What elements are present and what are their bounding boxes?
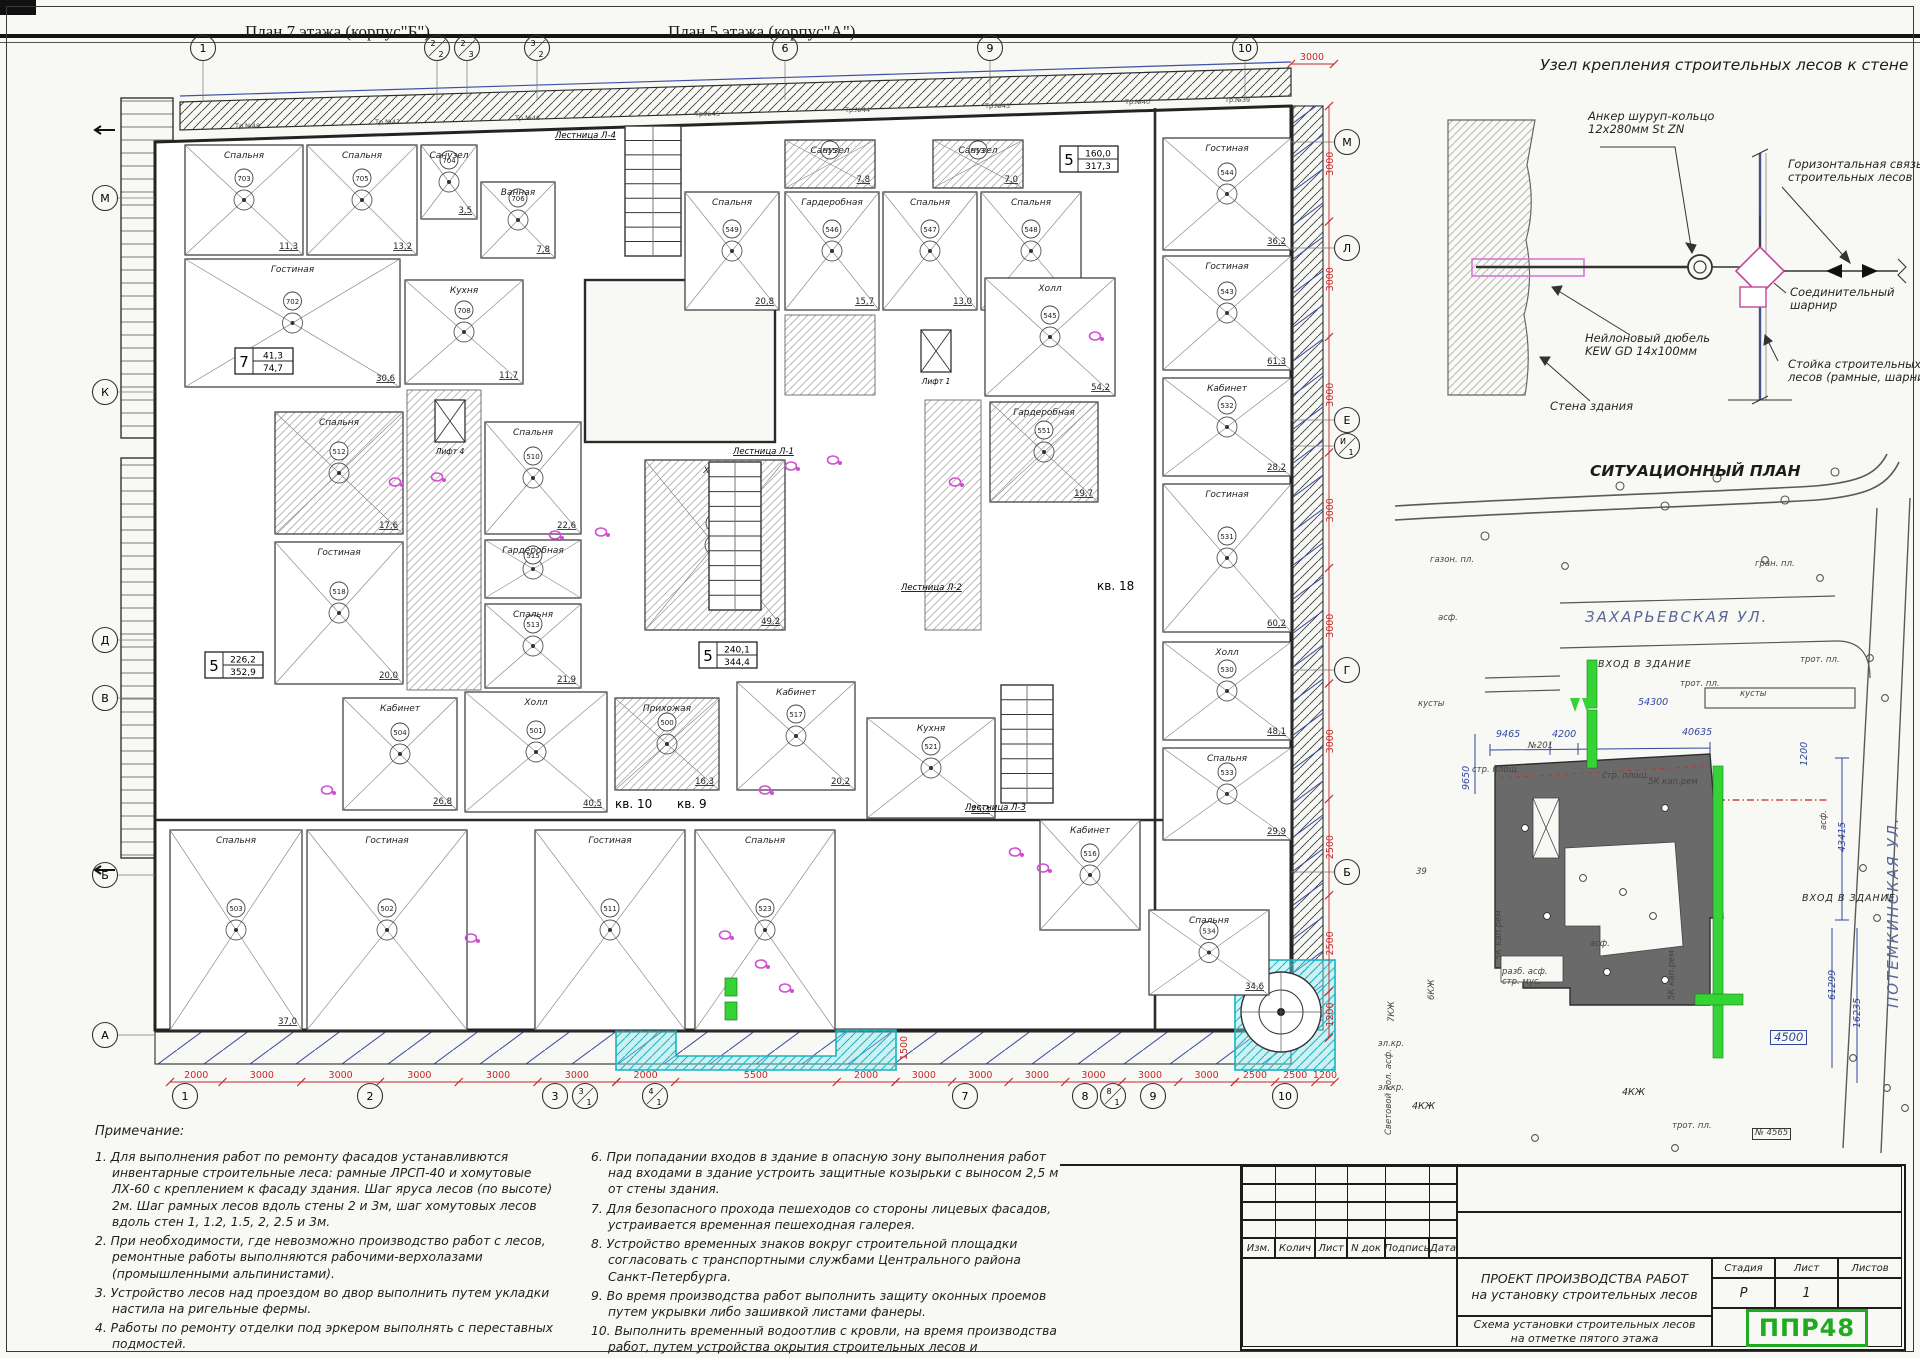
room-area: 30,6 bbox=[376, 374, 395, 384]
room: 547Спальня13,0 bbox=[883, 192, 977, 310]
apt-label: кв. 9 bbox=[677, 797, 707, 811]
dim-value: 1200 bbox=[1325, 1003, 1336, 1027]
label-asf-3: асф. bbox=[1820, 810, 1830, 830]
room-area: 11,7 bbox=[499, 371, 518, 381]
room-area: 48,1 bbox=[1267, 727, 1286, 737]
svg-text:352,9: 352,9 bbox=[230, 668, 256, 678]
dim-value: 3000 bbox=[912, 1070, 936, 1081]
label-wall: Стена здания bbox=[1550, 400, 1633, 413]
room-number: 516 bbox=[1083, 850, 1097, 858]
note-item: 8. Устройство временных знаков вокруг ст… bbox=[591, 1236, 1059, 1285]
room-name: Спальня bbox=[1011, 198, 1052, 208]
svg-text:Л: Л bbox=[1343, 242, 1351, 255]
room-area: 26,8 bbox=[433, 797, 452, 807]
room-number: 548 bbox=[1024, 226, 1037, 234]
label-4kzh-2: 4КЖ bbox=[1622, 1088, 1645, 1099]
pipe-label: Тр.№48 bbox=[234, 122, 260, 130]
room: 708Кухня11,7 bbox=[405, 280, 523, 384]
sheet-header: Лист bbox=[1775, 1258, 1838, 1278]
svg-text:1: 1 bbox=[656, 1098, 661, 1107]
room-number: 501 bbox=[529, 727, 542, 735]
room: 544Гостиная36,2 bbox=[1163, 138, 1291, 250]
axis-bubble: 81 bbox=[1101, 1084, 1126, 1109]
dim-4200: 4200 bbox=[1552, 730, 1576, 741]
stairs bbox=[709, 462, 761, 610]
room-area: 28,2 bbox=[1267, 463, 1286, 473]
room: 706Ванная7,8 bbox=[481, 182, 555, 258]
svg-text:3: 3 bbox=[468, 50, 473, 59]
room-name: Спальня bbox=[224, 151, 265, 161]
stairs bbox=[1001, 685, 1053, 803]
floorplan-svg: 703Спальня11,3705Спальня13,2704Санузел3,… bbox=[85, 30, 1375, 1120]
axis-bubble: 31 bbox=[573, 1084, 598, 1109]
room: 517Кабинет20,2 bbox=[737, 682, 855, 790]
lift: Лифт 1 bbox=[921, 330, 951, 386]
axis-bubble: М bbox=[93, 186, 118, 211]
green-mark bbox=[725, 978, 737, 996]
svg-text:344,4: 344,4 bbox=[724, 658, 750, 668]
room-number: 531 bbox=[1220, 533, 1233, 541]
apt-label: кв. 10 bbox=[615, 797, 652, 811]
room-number: 523 bbox=[758, 905, 771, 913]
dim-value: 3000 bbox=[1025, 1070, 1049, 1081]
room-name: Спальня bbox=[513, 428, 554, 438]
svg-text:5: 5 bbox=[1064, 151, 1074, 169]
label-hinge: Соединительныйшарнир bbox=[1790, 286, 1895, 312]
label-n4565: № 4565 bbox=[1752, 1128, 1791, 1140]
room-number: 517 bbox=[789, 711, 802, 719]
arrow-left-top bbox=[95, 126, 115, 134]
apartment-stamp: 5240,1344,4 bbox=[699, 642, 757, 668]
room: 532Кабинет28,2 bbox=[1163, 378, 1291, 476]
room-number: 546 bbox=[825, 226, 839, 234]
room-number: 512 bbox=[332, 448, 345, 456]
room-number: 544 bbox=[1220, 169, 1234, 177]
svg-text:8: 8 bbox=[1082, 1090, 1089, 1103]
room: 543Гостиная61,3 bbox=[1163, 256, 1291, 370]
label-entrance-right: ВХОД В ЗДАНИЕ bbox=[1802, 894, 1896, 905]
axis-bubble: 7 bbox=[953, 1084, 978, 1109]
note-item: 3. Устройство лесов над проездом во двор… bbox=[95, 1285, 563, 1317]
label-strpl-1: стр. площ. bbox=[1472, 766, 1519, 776]
note-item: 4. Работы по ремонту отделки под эркером… bbox=[95, 1320, 563, 1352]
room-name: Гардеробная bbox=[801, 198, 863, 208]
axis-bubble: 10 bbox=[1273, 1084, 1298, 1109]
room-area: 20,8 bbox=[755, 297, 774, 307]
room-number: 534 bbox=[1202, 928, 1216, 936]
svg-text:Б: Б bbox=[101, 869, 109, 882]
room: 512Спальня17,6 bbox=[275, 412, 403, 534]
label-kaprem-l: 5К кап.рем bbox=[1495, 910, 1505, 960]
dim-value: 2000 bbox=[184, 1070, 208, 1081]
label-asf-2: асф. bbox=[1590, 940, 1610, 950]
axis-bubble: Е bbox=[1335, 408, 1360, 433]
label-kusty-1: кусты bbox=[1418, 700, 1445, 710]
green-mark bbox=[725, 1002, 737, 1020]
stair-label: Лестница Л-3 bbox=[964, 803, 1026, 813]
room: 703Спальня11,3 bbox=[185, 145, 303, 255]
svg-text:3000: 3000 bbox=[1300, 52, 1324, 63]
apartment-stamp: 5226,2352,9 bbox=[205, 652, 263, 678]
dim-value: 3000 bbox=[1325, 498, 1336, 522]
room-name: Гостиная bbox=[1205, 144, 1249, 154]
rev-col-izm: Изм. bbox=[1242, 1238, 1275, 1258]
room: 518Гостиная20,0 bbox=[275, 542, 403, 684]
svg-text:240,1: 240,1 bbox=[724, 646, 750, 656]
room-name: Холл bbox=[1214, 648, 1238, 658]
dim-value: 3000 bbox=[1325, 383, 1336, 407]
room-number: 551 bbox=[1037, 427, 1050, 435]
room-area: 36,2 bbox=[1267, 237, 1286, 247]
room: 503Спальня37,0 bbox=[170, 830, 302, 1030]
room-name: Гостиная bbox=[365, 836, 409, 846]
room-name: Прихожая bbox=[643, 704, 692, 714]
svg-text:К: К bbox=[101, 386, 109, 399]
label-post: Стойка строительныхлесов (рамные, шарнир… bbox=[1788, 358, 1920, 384]
pipe-label: Тр.№39 bbox=[1224, 96, 1250, 104]
svg-text:317,3: 317,3 bbox=[1085, 162, 1111, 172]
dim-value: 3000 bbox=[1325, 267, 1336, 291]
siteplan-title: СИТУАЦИОННЫЙ ПЛАН bbox=[1590, 462, 1801, 480]
dim-61299: 61299 bbox=[1828, 970, 1839, 1000]
room-number: 510 bbox=[526, 453, 539, 461]
room-name: Спальня bbox=[1207, 754, 1248, 764]
dim-value: 1200 bbox=[1313, 1070, 1337, 1081]
svg-text:2: 2 bbox=[460, 39, 465, 48]
pipe-label: Тр.№47 bbox=[374, 118, 400, 126]
room-area: 37,0 bbox=[278, 1017, 297, 1027]
room-name: Спальня bbox=[712, 198, 753, 208]
svg-text:41,3: 41,3 bbox=[263, 352, 283, 362]
room-name: Кабинет bbox=[380, 704, 421, 714]
sheets-header: Листов bbox=[1838, 1258, 1902, 1278]
rev-col-kolich: Колич bbox=[1275, 1238, 1315, 1258]
notes-col1: 1. Для выполнения работ по ремонту фасад… bbox=[95, 1149, 563, 1358]
room-number: 708 bbox=[457, 307, 470, 315]
pipe-label: Тр.№45 bbox=[694, 110, 720, 118]
room-name: Кухня bbox=[917, 724, 946, 734]
room: 549Спальня20,8 bbox=[685, 192, 779, 310]
axis-bubble: К bbox=[93, 380, 118, 405]
room: 510Спальня22,6 bbox=[485, 422, 581, 534]
svg-text:2: 2 bbox=[367, 1090, 374, 1103]
room-name: Гардеробная bbox=[502, 546, 564, 556]
axis-bubble: 2 bbox=[358, 1084, 383, 1109]
anchor-ring bbox=[1688, 255, 1712, 279]
svg-text:1: 1 bbox=[1114, 1098, 1119, 1107]
svg-text:А: А bbox=[101, 1029, 109, 1042]
note-item: 1. Для выполнения работ по ремонту фасад… bbox=[95, 1149, 563, 1230]
label-kaprem-r: 5К кап.рем bbox=[1668, 950, 1678, 1000]
room: 500Прихожая16,3 bbox=[615, 698, 719, 790]
room: 513Спальня21,9 bbox=[485, 604, 581, 688]
svg-text:8: 8 bbox=[1106, 1087, 1111, 1096]
street-zakharyevskaya: ЗАХАРЬЕВСКАЯ УЛ. bbox=[1585, 608, 1768, 626]
room-number: 503 bbox=[229, 905, 242, 913]
svg-text:1: 1 bbox=[1348, 448, 1353, 457]
dim-value: 3000 bbox=[1081, 1070, 1105, 1081]
room-name: Гостиная bbox=[271, 265, 315, 275]
label-trot-1: трот. пл. bbox=[1800, 656, 1840, 666]
svg-text:7: 7 bbox=[962, 1090, 969, 1103]
svg-text:6: 6 bbox=[782, 42, 789, 55]
room-number: 549 bbox=[725, 226, 738, 234]
axis-bubble: 9 bbox=[1141, 1084, 1166, 1109]
svg-text:В: В bbox=[101, 692, 109, 705]
svg-text:3: 3 bbox=[530, 39, 535, 48]
label-4kzh-1: 4КЖ bbox=[1412, 1102, 1435, 1113]
sheets-value bbox=[1838, 1278, 1902, 1308]
room: 504Кабинет26,8 bbox=[343, 698, 457, 810]
room-name: Спальня bbox=[745, 836, 786, 846]
doc-title: ПРОЕКТ ПРОИЗВОДСТВА РАБОТна установку ст… bbox=[1457, 1258, 1712, 1316]
dim-value: 2500 bbox=[1243, 1070, 1267, 1081]
svg-text:10: 10 bbox=[1278, 1090, 1292, 1103]
room-name: Кабинет bbox=[1207, 384, 1248, 394]
svg-text:7: 7 bbox=[239, 353, 249, 371]
room: 705Спальня13,2 bbox=[307, 145, 417, 255]
room-area: 34,6 bbox=[1245, 982, 1264, 992]
room-number: 502 bbox=[380, 905, 393, 913]
rev-col-ndok: N док bbox=[1347, 1238, 1385, 1258]
room-name: Санузел bbox=[958, 146, 997, 156]
svg-text:3: 3 bbox=[552, 1090, 559, 1103]
svg-text:4: 4 bbox=[648, 1087, 653, 1096]
note-item: 9. Во время производства работ выполнить… bbox=[591, 1288, 1059, 1320]
street-potemkinskaya: ПОТЕМКИНСКАЯ УЛ. bbox=[1884, 816, 1902, 1008]
room-name: Спальня bbox=[342, 151, 383, 161]
rev-col-podpis: Подпись bbox=[1385, 1238, 1429, 1258]
room-name: Гостиная bbox=[1205, 490, 1249, 500]
room: 555Санузел7,8 bbox=[785, 140, 875, 188]
room-name: Гардеробная bbox=[1013, 408, 1075, 418]
room: 516Кабинет bbox=[1040, 820, 1140, 930]
label-asf-1: асф. bbox=[1438, 614, 1458, 624]
room: 534Спальня34,6 bbox=[1149, 910, 1269, 995]
axis-bubble: Б bbox=[1335, 860, 1360, 885]
svg-text:2: 2 bbox=[538, 50, 543, 59]
room-number: 530 bbox=[1220, 666, 1233, 674]
svg-text:Лифт 1: Лифт 1 bbox=[921, 377, 950, 386]
dim-value: 2500 bbox=[1325, 835, 1336, 859]
svg-text:10: 10 bbox=[1238, 42, 1252, 55]
axis-bubble: Г bbox=[1335, 658, 1360, 683]
axis-bubble: М bbox=[1335, 130, 1360, 155]
doc-subject: Схема установки строительных лесовна отм… bbox=[1457, 1316, 1712, 1347]
svg-text:Д: Д bbox=[101, 634, 110, 647]
room-area: 60,2 bbox=[1267, 619, 1286, 629]
axis-bubble: 10 bbox=[1233, 36, 1258, 61]
label-svet: Световой кол. асф. bbox=[1385, 1049, 1395, 1135]
dim-value: 2500 bbox=[1325, 931, 1336, 955]
room-area: 11,3 bbox=[279, 242, 298, 252]
label-7kzh: 7КЖ bbox=[1388, 1001, 1398, 1022]
room: 551Гардеробная19,7 bbox=[990, 402, 1098, 502]
svg-text:3: 3 bbox=[578, 1087, 583, 1096]
room-name: Спальня bbox=[1189, 916, 1230, 926]
room-area: 7,8 bbox=[536, 245, 550, 255]
label-trot-3: трот. пл. bbox=[1672, 1122, 1712, 1132]
label-strpl-2: стр. площ. bbox=[1602, 772, 1649, 782]
svg-text:74,7: 74,7 bbox=[263, 364, 283, 374]
svg-text:Лифт 4: Лифт 4 bbox=[435, 447, 465, 456]
room-area: 7,8 bbox=[856, 175, 870, 185]
room-name: Ванная bbox=[501, 188, 536, 198]
dim-value: 2000 bbox=[854, 1070, 878, 1081]
dim-value: 3000 bbox=[1325, 614, 1336, 638]
ppr48-logo: ППР48 bbox=[1746, 1309, 1868, 1347]
room-area: 21,9 bbox=[557, 675, 576, 685]
room-area: 19,7 bbox=[1074, 489, 1093, 499]
axis-bubble: 41 bbox=[643, 1084, 668, 1109]
label-39: 39 bbox=[1416, 868, 1427, 878]
room-area: 61,3 bbox=[1267, 357, 1286, 367]
room-area: 7,0 bbox=[1004, 175, 1018, 185]
label-kusty-2: кусты bbox=[1740, 690, 1767, 700]
rev-col-list: Лист bbox=[1315, 1238, 1347, 1258]
dim-value: 3000 bbox=[1325, 729, 1336, 753]
dim-value: 3000 bbox=[407, 1070, 431, 1081]
room-name: Кухня bbox=[450, 286, 479, 296]
note-item: 2. При необходимости, где невозможно про… bbox=[95, 1233, 563, 1282]
dim-43415: 43415 bbox=[1838, 822, 1849, 852]
room-number: 533 bbox=[1220, 769, 1233, 777]
room-name: Кабинет bbox=[1070, 826, 1111, 836]
dim-value: 3000 bbox=[250, 1070, 274, 1081]
room-name: Кабинет bbox=[776, 688, 817, 698]
room: 533Спальня29,9 bbox=[1163, 748, 1291, 840]
logo-cell: ППР48 bbox=[1712, 1308, 1902, 1347]
label-gazon: газон. пл. bbox=[1430, 556, 1474, 566]
room-name: Санузел bbox=[429, 151, 468, 161]
room-area: 15,7 bbox=[855, 297, 874, 307]
svg-text:Е: Е bbox=[1344, 414, 1351, 427]
dim-value: 3000 bbox=[1138, 1070, 1162, 1081]
room-number: 705 bbox=[355, 175, 368, 183]
dim-value: 3000 bbox=[1194, 1070, 1218, 1081]
axis-bubble: Б bbox=[93, 863, 118, 888]
room: 523Спальня bbox=[695, 830, 835, 1030]
dim-40635: 40635 bbox=[1682, 728, 1712, 739]
svg-text:5: 5 bbox=[703, 647, 713, 665]
notes-heading: Примечание: bbox=[95, 1124, 1060, 1139]
apartment-stamp: 5160,0317,3 bbox=[1060, 146, 1118, 172]
room: 501Холл40,5 bbox=[465, 692, 607, 812]
room: 515Гардеробная bbox=[485, 540, 581, 598]
room: 530Холл48,1 bbox=[1163, 642, 1291, 740]
room: 546Гардеробная15,7 bbox=[785, 192, 879, 310]
dim-value: 3000 bbox=[565, 1070, 589, 1081]
room: 704Санузел3,5 bbox=[421, 145, 477, 219]
room-name: Гостиная bbox=[1205, 262, 1249, 272]
axis-bubble: 32 bbox=[525, 36, 550, 61]
axis-bubble: 1 bbox=[191, 36, 216, 61]
svg-text:1: 1 bbox=[182, 1090, 189, 1103]
dim-9465: 9465 bbox=[1496, 730, 1520, 741]
room-name: Холл bbox=[1037, 284, 1061, 294]
room-name: Гостиная bbox=[588, 836, 632, 846]
svg-text:2: 2 bbox=[438, 50, 443, 59]
axis-bubble: 1 bbox=[173, 1084, 198, 1109]
note-item: 7. Для безопасного прохода пешеходов со … bbox=[591, 1201, 1059, 1233]
room-name: Спальня bbox=[910, 198, 951, 208]
room-name: Спальня bbox=[216, 836, 257, 846]
svg-text:М: М bbox=[1342, 136, 1352, 149]
room: 511Гостиная bbox=[535, 830, 685, 1030]
room-number: 521 bbox=[924, 743, 937, 751]
room-name: Спальня bbox=[513, 610, 554, 620]
dim-value: 2000 bbox=[634, 1070, 658, 1081]
room-area: 13,0 bbox=[953, 297, 972, 307]
axis-bubble: А bbox=[93, 1023, 118, 1048]
svg-text:1500: 1500 bbox=[899, 1036, 910, 1060]
room-number: 511 bbox=[603, 905, 616, 913]
room-number: 500 bbox=[660, 719, 673, 727]
label-n201: №201 bbox=[1528, 742, 1553, 752]
svg-text:9: 9 bbox=[1150, 1090, 1157, 1103]
pipe-label: Тр.№40 bbox=[1124, 98, 1150, 106]
pipe-label: Тр.№43 bbox=[984, 102, 1010, 110]
note-item: 6. При попадании входов в здание в опасн… bbox=[591, 1149, 1059, 1198]
svg-text:1: 1 bbox=[586, 1098, 591, 1107]
dim-value: 3000 bbox=[329, 1070, 353, 1081]
axis-bubble: 3 bbox=[543, 1084, 568, 1109]
room-area: 54,2 bbox=[1091, 383, 1110, 393]
notes-block: Примечание: 1. Для выполнения работ по р… bbox=[95, 1124, 1060, 1358]
room-name: Санузел bbox=[810, 146, 849, 156]
room: 545Холл54,2 bbox=[985, 278, 1115, 396]
label-gran: гран. пл. bbox=[1755, 560, 1795, 570]
title-block: Изм. Колич Лист N док Подпись Дата ПРОЕК… bbox=[1240, 1164, 1906, 1351]
stair-label: Лестница Л-4 bbox=[554, 131, 616, 141]
room-name: Спальня bbox=[319, 418, 360, 428]
room: 502Гостиная bbox=[307, 830, 467, 1030]
label-anchor: Анкер шуруп-кольцо12х280мм St ZN bbox=[1588, 110, 1714, 136]
detail-title: Узел крепления строительных лесов к стен… bbox=[1540, 56, 1908, 74]
room: 531Гостиная60,2 bbox=[1163, 484, 1291, 632]
axis-bubble: 23 bbox=[455, 36, 480, 61]
axis-bubble: 6 bbox=[773, 36, 798, 61]
room-area: 13,2 bbox=[393, 242, 412, 252]
svg-text:М: М bbox=[100, 192, 110, 205]
room-area: 49,2 bbox=[761, 617, 780, 627]
room-number: 702 bbox=[286, 298, 299, 306]
stair-label: Лестница Л-1 bbox=[732, 447, 794, 457]
dim-4500: 4500 bbox=[1770, 1030, 1807, 1045]
room-area: 16,3 bbox=[695, 777, 714, 787]
apt-label: кв. 18 bbox=[1097, 579, 1134, 593]
lift: Лифт 4 bbox=[435, 400, 465, 456]
svg-text:1: 1 bbox=[200, 42, 207, 55]
axis-bubble: 8 bbox=[1073, 1084, 1098, 1109]
svg-text:226,2: 226,2 bbox=[230, 656, 256, 666]
wall-section bbox=[1448, 120, 1535, 395]
room-number: 504 bbox=[393, 729, 407, 737]
room-number: 547 bbox=[923, 226, 936, 234]
apartment-stamp: 741,374,7 bbox=[235, 348, 293, 374]
label-trot-2: трот. пл. bbox=[1680, 680, 1720, 690]
label-entrance-top: ВХОД В ЗДАНИЕ bbox=[1598, 660, 1692, 671]
room: 553Санузел7,0 bbox=[933, 140, 1023, 188]
svg-text:160,0: 160,0 bbox=[1085, 150, 1111, 160]
dim-value: 3000 bbox=[968, 1070, 992, 1081]
svg-text:И: И bbox=[1340, 437, 1346, 446]
dim-1200: 1200 bbox=[1800, 742, 1811, 766]
room-area: 3,5 bbox=[458, 206, 472, 216]
dim-value: 2500 bbox=[1283, 1070, 1307, 1081]
room-name: Холл bbox=[523, 698, 547, 708]
label-horizontal-link: Горизонтальная связьстроительных лесов bbox=[1788, 158, 1920, 184]
